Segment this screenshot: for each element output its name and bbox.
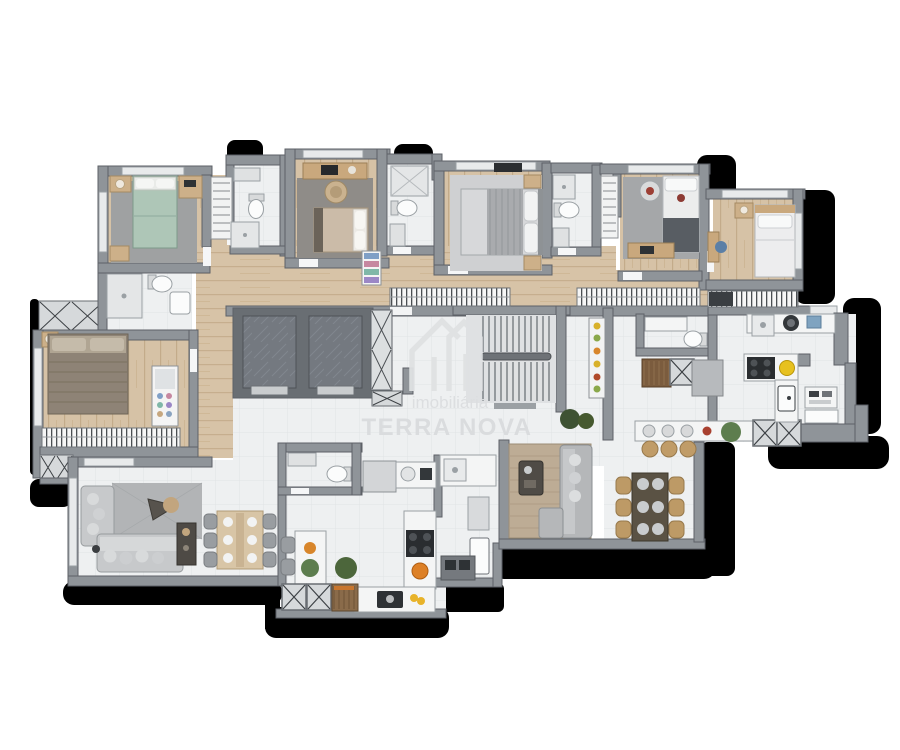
svg-text:imobiliária: imobiliária — [412, 393, 489, 412]
svg-text:TERRA NOVA: TERRA NOVA — [362, 414, 533, 441]
